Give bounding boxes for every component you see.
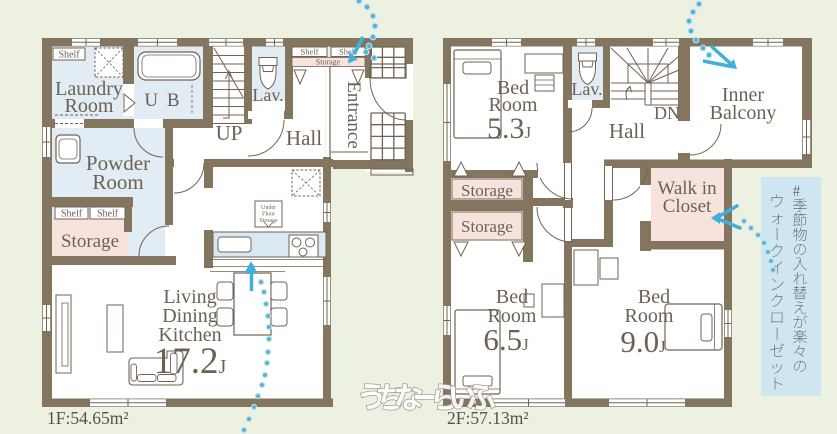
- svg-text:DN: DN: [654, 103, 680, 123]
- svg-text:Shelf: Shelf: [97, 209, 119, 220]
- svg-text:Shelf: Shelf: [58, 50, 80, 61]
- svg-text:Storage: Storage: [316, 58, 341, 67]
- svg-text:Storage: Storage: [259, 218, 278, 224]
- svg-text:Storage: Storage: [61, 231, 119, 252]
- svg-text:Shelf: Shelf: [61, 209, 83, 220]
- svg-text:Closet: Closet: [663, 196, 712, 217]
- svg-text:1F:54.65m²: 1F:54.65m²: [47, 408, 129, 428]
- svg-text:Room: Room: [65, 95, 114, 117]
- svg-text:17.2J: 17.2J: [154, 341, 227, 382]
- svg-text:Room: Room: [92, 170, 143, 194]
- svg-text:UP: UP: [216, 121, 243, 145]
- svg-text:Entrance: Entrance: [343, 81, 364, 149]
- svg-text:Under: Under: [261, 205, 276, 211]
- svg-text:Hall: Hall: [286, 126, 322, 150]
- svg-text:Storage: Storage: [461, 217, 513, 236]
- svg-text:Lav.: Lav.: [252, 85, 283, 105]
- svg-text:Shelf: Shelf: [301, 47, 319, 57]
- svg-text:Storage: Storage: [461, 181, 513, 200]
- svg-text:U B: U B: [144, 90, 181, 111]
- svg-text:2F:57.13m²: 2F:57.13m²: [447, 408, 529, 428]
- svg-text:Hall: Hall: [609, 119, 645, 143]
- svg-text:Lav.: Lav.: [571, 79, 602, 99]
- svg-text:Floor: Floor: [262, 212, 275, 218]
- svg-text:Balcony: Balcony: [710, 102, 777, 124]
